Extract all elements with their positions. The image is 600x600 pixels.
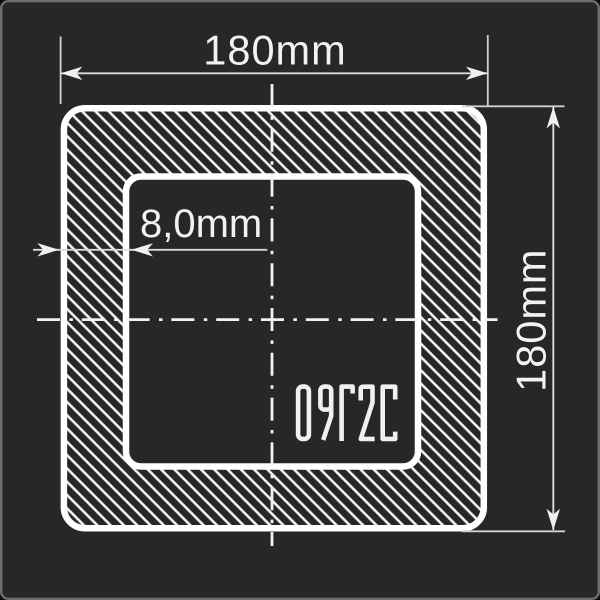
svg-text:180mm: 180mm bbox=[508, 249, 555, 392]
svg-text:180mm: 180mm bbox=[203, 27, 346, 74]
svg-text:8,0mm: 8,0mm bbox=[140, 202, 262, 246]
